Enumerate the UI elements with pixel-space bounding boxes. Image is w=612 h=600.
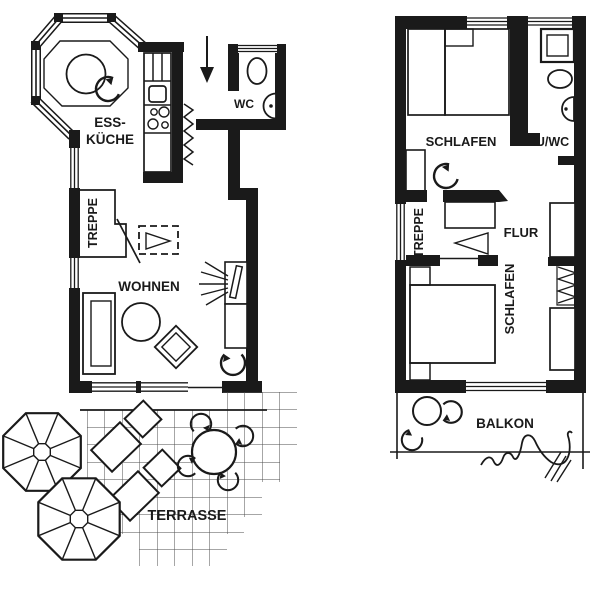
- hall-cabinet: [550, 203, 575, 257]
- pillow: [445, 29, 473, 46]
- label-wc: WC: [234, 97, 254, 111]
- label-flur: FLUR: [504, 225, 539, 240]
- bathroom: [541, 29, 574, 121]
- label-treppe-upper: TREPPE: [412, 208, 426, 258]
- label-du-wc: DU/WC: [527, 135, 569, 149]
- label-wohnen: WOHNEN: [118, 279, 180, 294]
- label-schlafen-top: SCHLAFEN: [426, 134, 497, 149]
- upper-windows: [395, 16, 572, 393]
- parasol-umbrella: [38, 478, 119, 559]
- kitchen-sink: [149, 86, 166, 102]
- washbasin: [562, 97, 574, 121]
- bedroom-door-swing-icon: [430, 161, 460, 192]
- balcony-chair-icon: [398, 429, 424, 454]
- balcony: [390, 391, 590, 482]
- label-terrasse: TERRASSE: [148, 508, 227, 524]
- sofa: [83, 293, 115, 374]
- toilet: [248, 58, 267, 84]
- terrace: [3, 392, 297, 566]
- label-treppe-ground: TREPPE: [86, 198, 100, 248]
- double-bed: [410, 267, 495, 380]
- label-ess-kueche-line1: ESS-: [94, 115, 126, 130]
- floor-plan-page: ESS- KÜCHE WC TREPPE WOHNEN TERRASSE: [0, 0, 612, 600]
- dining-table: [67, 55, 106, 94]
- nightstand: [410, 363, 430, 380]
- shower: [541, 29, 574, 62]
- entrance-arrow-icon: [200, 36, 214, 83]
- coffee-table: [122, 303, 160, 341]
- balcony-chair-icon: [443, 401, 461, 423]
- floor-plan-svg: ESS- KÜCHE WC TREPPE WOHNEN TERRASSE: [0, 0, 612, 600]
- label-ess-kueche-line2: KÜCHE: [86, 132, 134, 147]
- upper-floor-plan: SCHLAFEN DU/WC TREPPE FLUR SCHLAFEN BALK…: [390, 16, 590, 482]
- terrace-table: [192, 430, 236, 474]
- kitchen-stove: [148, 107, 169, 129]
- label-balkon: BALKON: [476, 416, 534, 431]
- ground-floor-plan: ESS- KÜCHE WC TREPPE WOHNEN TERRASSE: [3, 13, 297, 566]
- balcony-table: [413, 397, 441, 425]
- tv-shelf-unit: [199, 262, 247, 348]
- wardrobe: [550, 308, 575, 370]
- terrace-door-swing-icon: [221, 355, 245, 375]
- nightstand: [410, 267, 430, 285]
- label-schlafen-bottom: SCHLAFEN: [502, 264, 517, 335]
- twin-beds: [408, 29, 509, 115]
- plant-squiggle-icon: [481, 432, 572, 482]
- exterior-steps-hatch: [184, 104, 193, 165]
- armchair: [155, 326, 197, 368]
- stairs-upper: [445, 202, 495, 254]
- sink: [548, 70, 572, 88]
- kitchen-unit: [144, 53, 171, 172]
- nightstand: [406, 150, 425, 192]
- tv-icon: [199, 262, 242, 305]
